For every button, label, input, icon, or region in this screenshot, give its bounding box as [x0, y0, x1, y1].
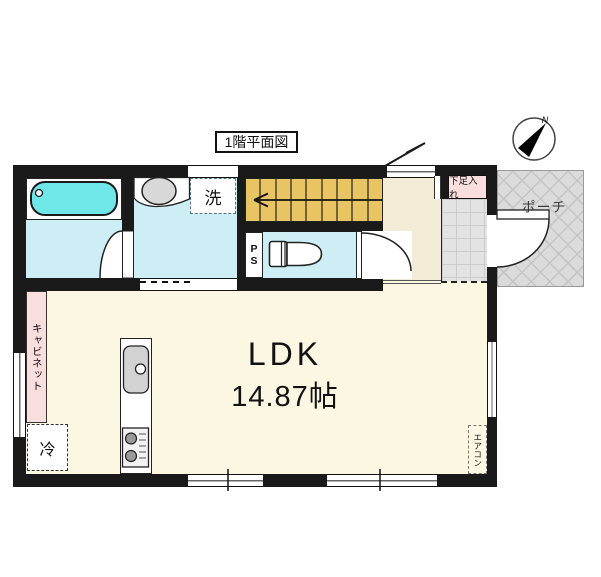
wall-left	[13, 165, 26, 487]
air-conditioner-label: エアコン	[473, 433, 482, 467]
plan-title-box: 1階平面図	[215, 131, 298, 153]
wall-right	[487, 165, 497, 487]
refrigerator-box: 冷	[27, 424, 68, 471]
window-bottom-right	[327, 474, 437, 487]
ldk-area: 14.87帖	[231, 373, 339, 415]
wall-bath-washroom	[122, 178, 134, 231]
wall-top-middle	[238, 165, 387, 178]
entrance-step-edge	[383, 280, 441, 284]
genkan-step-dash	[441, 281, 487, 283]
window-left-wall	[13, 353, 26, 437]
shoe-storage-label: 下足入れ	[449, 173, 486, 201]
toilet-room-floor	[263, 232, 356, 278]
refrigerator-label: 冷	[39, 436, 55, 460]
porch-label-text: ポーチ	[522, 197, 567, 217]
floor-plan: P S 下足入れ 洗 キャビネット 冷 エアコン 1階平面図	[0, 0, 601, 577]
compass-north-text: N	[542, 115, 549, 125]
ldk-name: LDK	[248, 336, 322, 373]
opening-washroom-ldk	[140, 278, 237, 291]
toilet-door-swing-area	[356, 231, 412, 279]
wall-shoebox-side	[441, 165, 448, 199]
bathtub-deck	[26, 178, 122, 220]
wall-top-left	[13, 165, 188, 178]
cabinet-strip: キャビネット	[26, 291, 47, 423]
window-bottom-left	[188, 474, 263, 487]
pipe-space-box: P S	[245, 232, 263, 278]
washer-space-box: 洗	[190, 178, 236, 214]
compass-north-label: N	[538, 114, 552, 126]
entrance-door-opening	[487, 215, 497, 267]
air-conditioner-box: エアコン	[468, 425, 487, 474]
entrance-canopy-mark	[385, 143, 425, 166]
washer-space-label: 洗	[205, 184, 222, 209]
porch-area	[497, 170, 584, 287]
pipe-space-letter-s: S	[250, 255, 257, 267]
stairs-area	[245, 178, 383, 222]
kitchen-counter	[120, 338, 152, 474]
pipe-space-letter-p: P	[250, 243, 257, 255]
window-entrance-top	[387, 165, 435, 178]
shoe-storage-box: 下足入れ	[448, 175, 487, 199]
hall-shoebox-gap	[434, 176, 441, 199]
cabinet-label: キャビネット	[31, 323, 42, 392]
ldk-label-block: LDK 14.87帖	[165, 339, 405, 411]
plan-title: 1階平面図	[225, 132, 289, 152]
porch-label: ポーチ	[508, 198, 580, 216]
window-right-wall	[487, 342, 497, 417]
genkan-tile-floor	[441, 199, 487, 281]
sliding-door-dash	[140, 281, 190, 283]
window-washroom-top	[188, 165, 238, 178]
